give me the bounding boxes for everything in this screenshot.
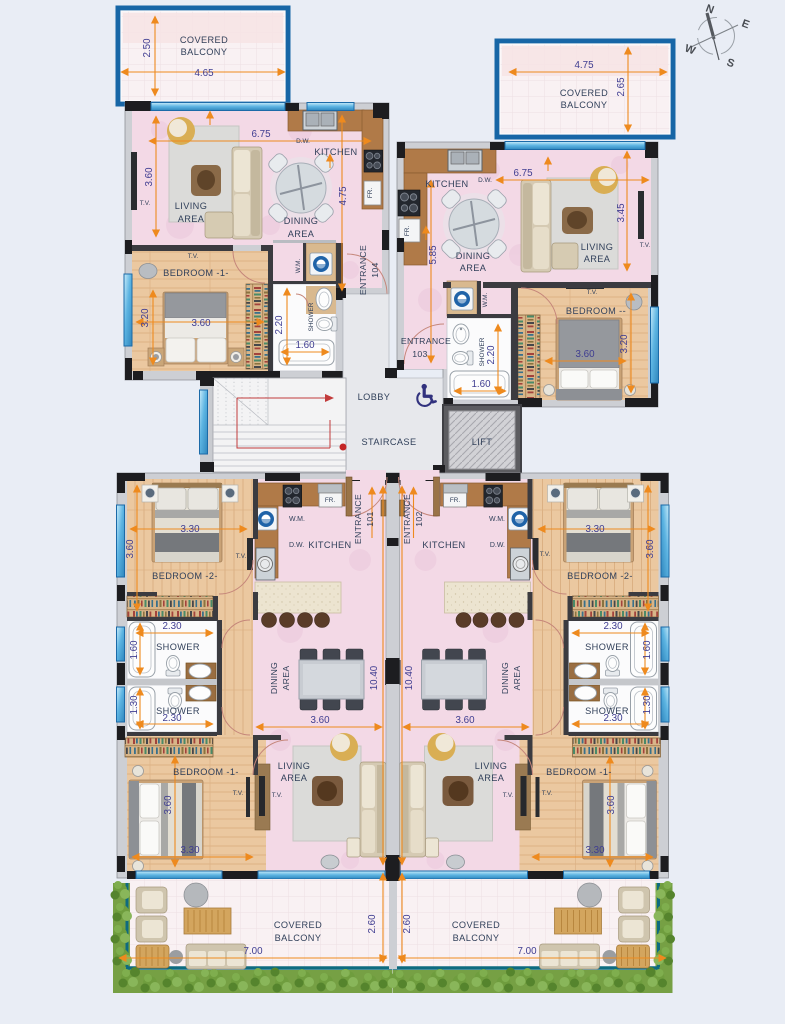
svg-text:FR.: FR. bbox=[450, 497, 461, 504]
svg-text:104: 104 bbox=[370, 262, 380, 277]
svg-text:3.45: 3.45 bbox=[616, 203, 627, 223]
svg-text:4.65: 4.65 bbox=[194, 68, 214, 79]
svg-text:3.20: 3.20 bbox=[140, 308, 151, 328]
svg-text:2.30: 2.30 bbox=[603, 621, 623, 632]
svg-text:D.W.: D.W. bbox=[478, 177, 492, 184]
svg-text:LIVING: LIVING bbox=[581, 242, 614, 252]
svg-text:ENTRANCE: ENTRANCE bbox=[353, 494, 363, 544]
svg-text:SHOWER: SHOWER bbox=[308, 302, 315, 331]
svg-text:2.60: 2.60 bbox=[367, 914, 378, 934]
svg-text:7.00: 7.00 bbox=[243, 946, 263, 957]
svg-text:W.M.: W.M. bbox=[489, 516, 505, 523]
svg-text:102: 102 bbox=[414, 511, 424, 526]
svg-text:3.60: 3.60 bbox=[645, 539, 656, 559]
svg-text:6.75: 6.75 bbox=[251, 129, 271, 140]
svg-text:BEDROOM -1-: BEDROOM -1- bbox=[173, 767, 239, 777]
svg-text:3.60: 3.60 bbox=[144, 167, 155, 187]
svg-text:2.60: 2.60 bbox=[402, 914, 413, 934]
svg-text:3.30: 3.30 bbox=[180, 524, 200, 535]
svg-text:COVERED: COVERED bbox=[560, 88, 608, 98]
svg-text:COVERED: COVERED bbox=[180, 35, 228, 45]
svg-text:AREA: AREA bbox=[460, 263, 487, 273]
svg-text:KITCHEN: KITCHEN bbox=[308, 540, 351, 550]
svg-text:AREA: AREA bbox=[281, 666, 291, 691]
svg-text:3.20: 3.20 bbox=[619, 334, 630, 354]
svg-text:1.60: 1.60 bbox=[295, 340, 315, 351]
svg-text:SHOWER: SHOWER bbox=[156, 642, 200, 652]
svg-text:T.V.: T.V. bbox=[140, 200, 151, 207]
svg-text:LIVING: LIVING bbox=[278, 761, 311, 771]
svg-text:AREA: AREA bbox=[478, 773, 505, 783]
svg-text:BEDROOM -2-: BEDROOM -2- bbox=[152, 571, 218, 581]
svg-text:4.75: 4.75 bbox=[338, 186, 349, 206]
svg-text:T.V.: T.V. bbox=[503, 792, 514, 799]
svg-text:1.60: 1.60 bbox=[642, 640, 653, 660]
svg-text:COVERED: COVERED bbox=[274, 920, 322, 930]
svg-text:2.65: 2.65 bbox=[616, 77, 627, 97]
svg-text:KITCHEN: KITCHEN bbox=[425, 179, 468, 189]
svg-text:3.30: 3.30 bbox=[585, 524, 605, 535]
svg-text:7.00: 7.00 bbox=[517, 946, 537, 957]
svg-text:3.60: 3.60 bbox=[606, 795, 617, 815]
svg-text:DINING: DINING bbox=[269, 662, 279, 694]
svg-text:W.M.: W.M. bbox=[295, 259, 302, 274]
svg-text:COVERED: COVERED bbox=[452, 920, 500, 930]
svg-text:6.75: 6.75 bbox=[513, 168, 533, 179]
svg-text:101: 101 bbox=[365, 511, 375, 526]
svg-text:1.30: 1.30 bbox=[642, 695, 653, 715]
svg-text:DINING: DINING bbox=[500, 662, 510, 694]
svg-text:SHOWER: SHOWER bbox=[585, 642, 629, 652]
svg-text:SHOWER: SHOWER bbox=[479, 337, 486, 366]
svg-text:10.40: 10.40 bbox=[369, 665, 380, 690]
svg-text:2.50: 2.50 bbox=[142, 38, 153, 58]
svg-text:T.V.: T.V. bbox=[640, 242, 651, 249]
svg-text:AREA: AREA bbox=[584, 254, 611, 264]
svg-text:SHOWER: SHOWER bbox=[585, 706, 629, 716]
svg-text:3.60: 3.60 bbox=[310, 715, 330, 726]
svg-text:ENTRANCE: ENTRANCE bbox=[358, 245, 368, 295]
svg-text:2.20: 2.20 bbox=[274, 315, 285, 335]
svg-text:AREA: AREA bbox=[288, 229, 315, 239]
svg-text:T.V.: T.V. bbox=[188, 253, 199, 260]
svg-text:3.30: 3.30 bbox=[180, 845, 200, 856]
svg-text:T.V.: T.V. bbox=[272, 792, 283, 799]
svg-text:DINING: DINING bbox=[284, 216, 319, 226]
svg-text:D.W.: D.W. bbox=[490, 542, 505, 549]
svg-text:BALCONY: BALCONY bbox=[275, 933, 322, 943]
svg-text:103: 103 bbox=[412, 349, 427, 359]
svg-text:AREA: AREA bbox=[281, 773, 308, 783]
svg-text:BEDROOM -1-: BEDROOM -1- bbox=[163, 268, 229, 278]
svg-text:T.V.: T.V. bbox=[587, 289, 598, 296]
svg-text:5.85: 5.85 bbox=[428, 245, 439, 265]
svg-text:D.W.: D.W. bbox=[296, 138, 310, 145]
svg-text:LIFT: LIFT bbox=[472, 437, 493, 447]
svg-text:10.40: 10.40 bbox=[404, 665, 415, 690]
svg-text:1.30: 1.30 bbox=[129, 695, 140, 715]
svg-text:T.V.: T.V. bbox=[236, 553, 247, 560]
svg-text:KITCHEN: KITCHEN bbox=[314, 147, 357, 157]
svg-text:AREA: AREA bbox=[178, 214, 205, 224]
svg-text:DINING: DINING bbox=[456, 251, 491, 261]
svg-text:FR.: FR. bbox=[404, 226, 411, 237]
svg-text:LIVING: LIVING bbox=[175, 201, 208, 211]
svg-text:3.60: 3.60 bbox=[191, 318, 211, 329]
svg-text:SHOWER: SHOWER bbox=[156, 706, 200, 716]
svg-text:BALCONY: BALCONY bbox=[181, 47, 228, 57]
svg-text:W.M.: W.M. bbox=[289, 516, 305, 523]
svg-text:ENTRANCE: ENTRANCE bbox=[402, 494, 412, 544]
svg-text:LIVING: LIVING bbox=[475, 761, 508, 771]
svg-text:KITCHEN: KITCHEN bbox=[422, 540, 465, 550]
svg-text:T.V.: T.V. bbox=[542, 790, 553, 797]
svg-text:FR.: FR. bbox=[367, 188, 374, 199]
svg-text:FR.: FR. bbox=[325, 497, 336, 504]
svg-text:T.V.: T.V. bbox=[233, 790, 244, 797]
svg-text:3.60: 3.60 bbox=[455, 715, 475, 726]
svg-text:AREA: AREA bbox=[512, 666, 522, 691]
svg-text:BALCONY: BALCONY bbox=[453, 933, 500, 943]
svg-text:3.30: 3.30 bbox=[585, 845, 605, 856]
svg-text:BEDROOM -1-: BEDROOM -1- bbox=[546, 767, 612, 777]
svg-text:BEDROOM -2-: BEDROOM -2- bbox=[567, 571, 633, 581]
svg-text:4.75: 4.75 bbox=[574, 60, 594, 71]
svg-text:1.60: 1.60 bbox=[129, 640, 140, 660]
svg-text:LOBBY: LOBBY bbox=[358, 392, 391, 402]
svg-text:1.60: 1.60 bbox=[471, 379, 491, 390]
svg-text:STAIRCASE: STAIRCASE bbox=[362, 437, 417, 447]
svg-text:D.W.: D.W. bbox=[289, 542, 304, 549]
svg-text:T.V.: T.V. bbox=[540, 551, 551, 558]
svg-text:2.30: 2.30 bbox=[162, 621, 182, 632]
svg-text:ENTRANCE: ENTRANCE bbox=[401, 336, 451, 346]
svg-text:3.60: 3.60 bbox=[125, 539, 136, 559]
svg-text:BEDROOM --: BEDROOM -- bbox=[566, 306, 626, 316]
svg-text:2.20: 2.20 bbox=[486, 345, 497, 365]
svg-text:3.60: 3.60 bbox=[163, 795, 174, 815]
svg-text:3.60: 3.60 bbox=[575, 349, 595, 360]
svg-text:W.M.: W.M. bbox=[482, 293, 489, 308]
svg-text:BALCONY: BALCONY bbox=[561, 100, 608, 110]
